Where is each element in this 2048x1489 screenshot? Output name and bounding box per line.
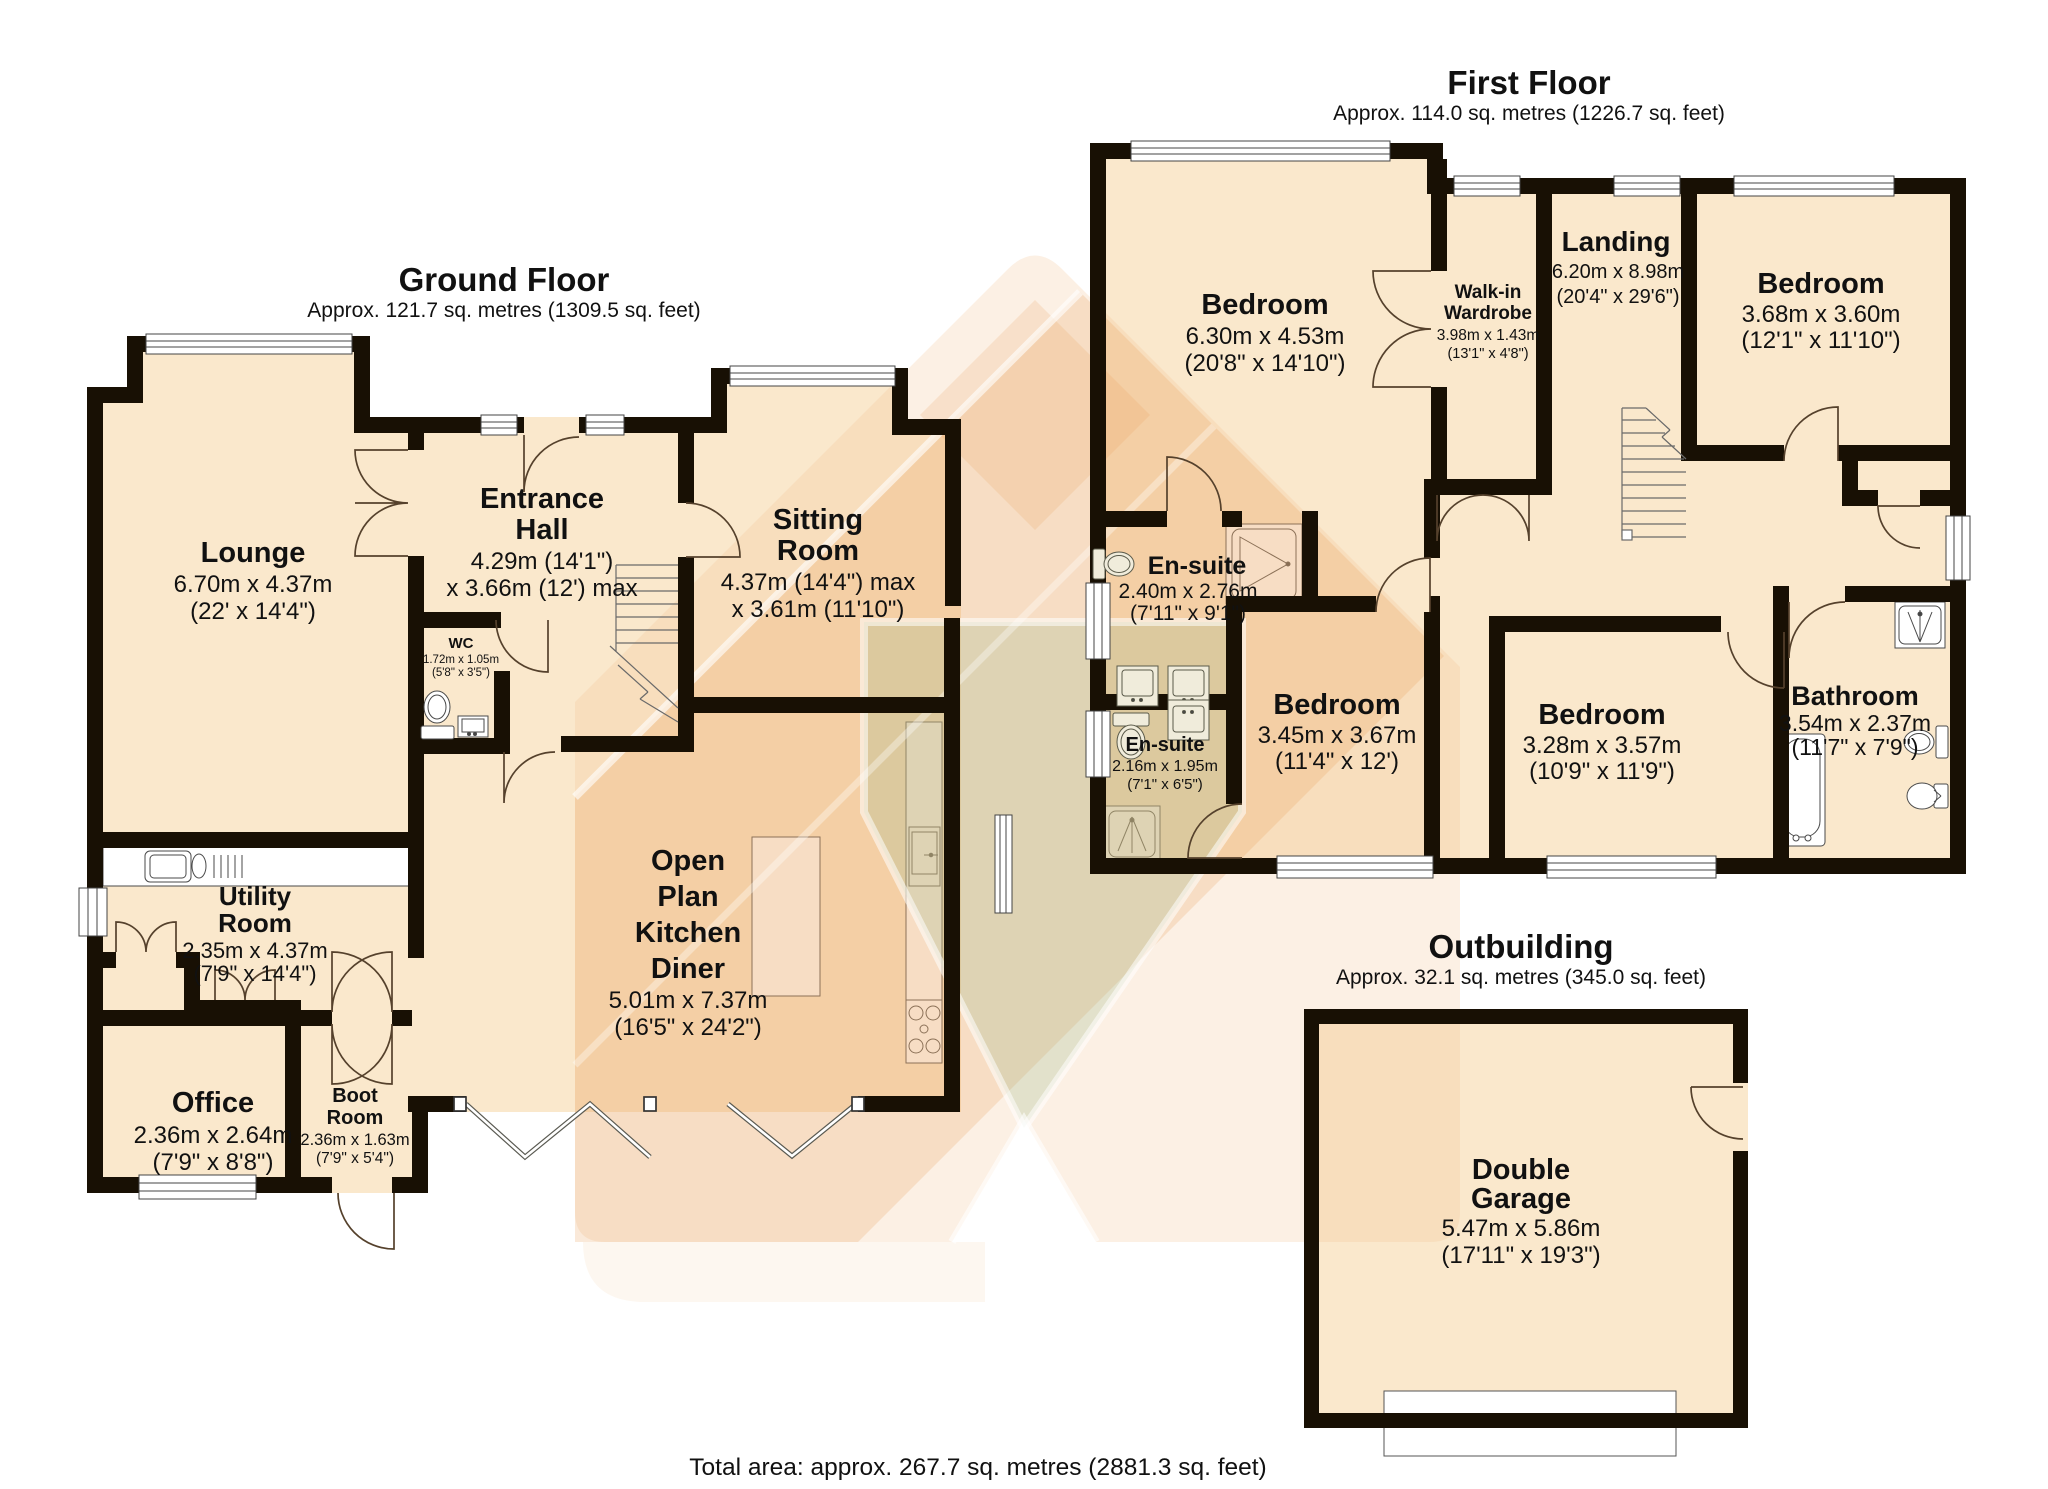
svg-text:1.72m x 1.05m: 1.72m x 1.05m: [423, 654, 499, 666]
svg-text:Bedroom: Bedroom: [1201, 289, 1328, 321]
svg-text:(12'1" x 11'10"): (12'1" x 11'10"): [1741, 327, 1900, 354]
svg-text:Garage: Garage: [1471, 1183, 1571, 1215]
svg-text:2.36m x 1.63m: 2.36m x 1.63m: [300, 1131, 409, 1149]
svg-text:2.40m x 2.76m: 2.40m x 2.76m: [1119, 580, 1258, 603]
svg-text:Lounge: Lounge: [201, 537, 306, 569]
svg-text:Diner: Diner: [651, 953, 725, 985]
svg-text:Bedroom: Bedroom: [1538, 699, 1665, 731]
svg-text:Utility: Utility: [219, 881, 292, 911]
svg-text:(11'4" x 12'): (11'4" x 12'): [1275, 748, 1399, 775]
svg-text:5.47m x 5.86m: 5.47m x 5.86m: [1442, 1215, 1601, 1242]
svg-text:3.28m x 3.57m: 3.28m x 3.57m: [1523, 732, 1682, 759]
svg-text:Bedroom: Bedroom: [1757, 268, 1884, 300]
svg-text:6.20m x 8.98m: 6.20m x 8.98m: [1552, 261, 1684, 283]
svg-text:Sitting: Sitting: [773, 504, 863, 536]
svg-text:Bathroom: Bathroom: [1791, 681, 1919, 711]
svg-text:3.45m x 3.67m: 3.45m x 3.67m: [1258, 722, 1417, 749]
svg-text:First Floor: First Floor: [1447, 64, 1610, 101]
svg-text:WC: WC: [449, 635, 474, 652]
svg-text:(22' x 14'4"): (22' x 14'4"): [190, 598, 316, 625]
svg-text:Approx. 32.1 sq. metres (345.0: Approx. 32.1 sq. metres (345.0 sq. feet): [1336, 966, 1706, 989]
svg-text:(5'8" x 3'5"): (5'8" x 3'5"): [432, 667, 490, 679]
svg-text:Total area: approx. 267.7 sq.: Total area: approx. 267.7 sq. metres (28…: [689, 1454, 1266, 1481]
svg-text:(7'11" x 9'1"): (7'11" x 9'1"): [1130, 602, 1246, 625]
svg-text:Plan: Plan: [657, 881, 718, 913]
svg-text:5.01m x 7.37m: 5.01m x 7.37m: [609, 987, 768, 1014]
svg-text:2.35m x 4.37m: 2.35m x 4.37m: [182, 938, 328, 963]
svg-text:Bedroom: Bedroom: [1273, 689, 1400, 721]
svg-text:Approx. 121.7 sq. metres (1309: Approx. 121.7 sq. metres (1309.5 sq. fee…: [307, 299, 700, 322]
svg-text:(13'1" x 4'8"): (13'1" x 4'8"): [1447, 346, 1528, 362]
svg-text:(20'8" x 14'10"): (20'8" x 14'10"): [1185, 350, 1346, 377]
svg-text:3.54m x 2.37m: 3.54m x 2.37m: [1779, 710, 1931, 736]
svg-text:6.70m x 4.37m: 6.70m x 4.37m: [174, 571, 333, 598]
svg-text:Kitchen: Kitchen: [635, 917, 741, 949]
svg-text:3.98m x 1.43m: 3.98m x 1.43m: [1437, 327, 1540, 344]
svg-text:Landing: Landing: [1562, 226, 1671, 257]
svg-text:2.36m x 2.64m: 2.36m x 2.64m: [134, 1122, 293, 1149]
svg-text:(16'5" x 24'2"): (16'5" x 24'2"): [614, 1014, 762, 1041]
svg-text:Approx. 114.0 sq. metres (1226: Approx. 114.0 sq. metres (1226.7 sq. fee…: [1333, 102, 1725, 125]
svg-text:x 3.61m (11'10"): x 3.61m (11'10"): [732, 596, 905, 623]
svg-text:Boot: Boot: [332, 1085, 378, 1107]
svg-text:Ground Floor: Ground Floor: [399, 261, 610, 298]
svg-text:Walk-in: Walk-in: [1455, 282, 1522, 303]
svg-text:Hall: Hall: [515, 514, 568, 546]
svg-text:Outbuilding: Outbuilding: [1428, 928, 1613, 965]
svg-text:Double: Double: [1472, 1154, 1570, 1186]
svg-text:(17'11" x 19'3"): (17'11" x 19'3"): [1441, 1242, 1600, 1269]
svg-text:(7'9" x 5'4"): (7'9" x 5'4"): [316, 1150, 394, 1167]
svg-text:4.29m (14'1"): 4.29m (14'1"): [471, 548, 614, 575]
svg-text:Room: Room: [218, 908, 292, 938]
svg-text:(7'9" x 8'8"): (7'9" x 8'8"): [153, 1149, 274, 1176]
svg-text:Room: Room: [327, 1107, 384, 1129]
svg-text:Open: Open: [651, 845, 725, 877]
svg-text:3.68m x 3.60m: 3.68m x 3.60m: [1742, 301, 1901, 328]
svg-text:En-suite: En-suite: [1126, 734, 1205, 756]
svg-text:Office: Office: [172, 1087, 254, 1119]
svg-text:(20'4" x 29'6"): (20'4" x 29'6"): [1556, 286, 1679, 308]
svg-text:6.30m x 4.53m: 6.30m x 4.53m: [1186, 323, 1345, 350]
svg-text:(10'9" x 11'9"): (10'9" x 11'9"): [1529, 758, 1675, 785]
svg-text:2.16m x 1.95m: 2.16m x 1.95m: [1112, 758, 1218, 775]
svg-text:4.37m (14'4") max: 4.37m (14'4") max: [721, 569, 916, 596]
svg-text:Wardrobe: Wardrobe: [1444, 303, 1532, 324]
svg-text:(7'1" x 6'5"): (7'1" x 6'5"): [1127, 776, 1203, 793]
svg-text:Entrance: Entrance: [480, 483, 604, 515]
svg-text:Room: Room: [777, 535, 859, 567]
svg-text:En-suite: En-suite: [1148, 552, 1247, 580]
svg-text:x 3.66m (12') max: x 3.66m (12') max: [446, 575, 637, 602]
svg-text:(11'7" x 7'9"): (11'7" x 7'9"): [1792, 734, 1919, 760]
svg-text:(7'9" x 14'4"): (7'9" x 14'4"): [193, 961, 316, 986]
